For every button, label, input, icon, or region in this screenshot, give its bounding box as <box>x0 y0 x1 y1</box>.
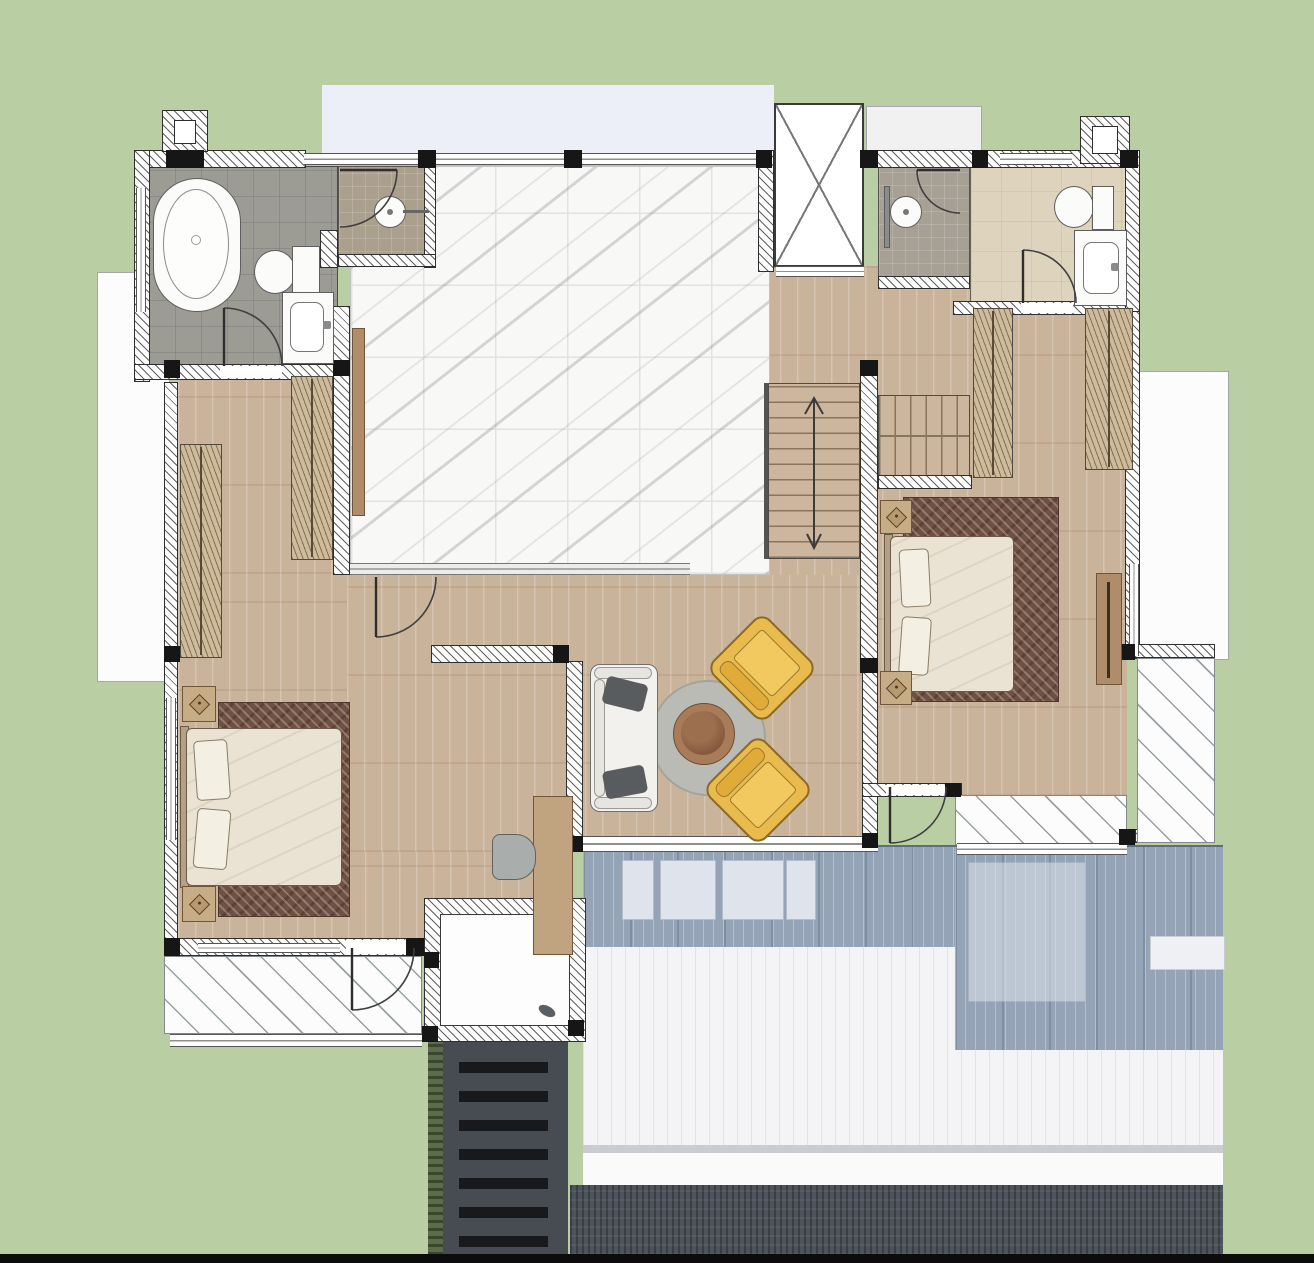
toilet-tank <box>1092 186 1114 230</box>
column <box>166 150 204 168</box>
column <box>860 150 878 168</box>
balcony-left <box>164 956 422 1034</box>
bathtub <box>153 178 241 312</box>
column <box>972 150 988 168</box>
wardrobe <box>973 308 1013 478</box>
column <box>1120 150 1138 168</box>
column <box>860 658 878 673</box>
window <box>438 153 772 165</box>
window <box>136 188 146 312</box>
floor-plan-canvas <box>0 0 1314 1263</box>
window <box>1000 153 1072 165</box>
vanity-sink <box>1074 230 1127 306</box>
column <box>164 646 180 662</box>
right-lower-roof <box>1137 371 1229 660</box>
coffee-table <box>673 703 735 765</box>
window <box>166 698 176 840</box>
nightstand <box>182 686 216 722</box>
nightstand <box>880 500 912 534</box>
grab-bar <box>884 186 890 248</box>
bed-2 <box>890 536 1014 692</box>
column <box>860 360 878 376</box>
wall <box>431 645 569 663</box>
wall <box>864 150 976 168</box>
door-opening <box>220 366 282 378</box>
shower-room-2 <box>878 166 970 278</box>
terrace-strip <box>955 795 1127 845</box>
wall <box>134 150 306 168</box>
shower-head <box>374 196 406 228</box>
bottom-bar <box>0 1254 1314 1263</box>
column <box>422 1026 438 1042</box>
terrace-right <box>1137 658 1215 843</box>
hall-console <box>352 328 365 516</box>
wall <box>164 382 178 956</box>
elevator-shaft <box>774 103 864 267</box>
sofa <box>590 664 658 812</box>
wall <box>1125 150 1140 316</box>
wardrobe <box>291 376 333 560</box>
balcony-sill <box>170 1034 422 1047</box>
vanity-sink <box>282 292 334 364</box>
column <box>568 1020 584 1036</box>
toilet <box>254 250 296 294</box>
column <box>164 360 180 378</box>
desk-console <box>533 796 573 955</box>
door-opening <box>886 785 946 795</box>
deck-white-patch <box>1150 936 1225 970</box>
column <box>424 952 439 968</box>
stair-railing <box>764 383 768 559</box>
column <box>756 150 772 168</box>
column <box>564 150 582 168</box>
bed-master <box>186 728 342 886</box>
wall <box>878 475 972 489</box>
wardrobe <box>1085 308 1133 470</box>
lower-dark-roof <box>570 1185 1223 1255</box>
louver-slats <box>459 1061 548 1247</box>
window <box>198 943 340 953</box>
column <box>418 150 436 168</box>
wall <box>424 164 436 268</box>
column <box>1119 829 1135 845</box>
column <box>164 938 180 956</box>
desk-chair <box>492 834 536 880</box>
tv-console <box>1096 573 1122 685</box>
wall <box>758 150 774 272</box>
wall <box>862 672 878 835</box>
deck-light-panel <box>968 862 1086 1002</box>
wardrobe <box>180 444 222 658</box>
deck-skylight-panel <box>722 860 784 920</box>
wall <box>860 374 878 672</box>
shower-arm <box>403 210 429 213</box>
shower-head <box>890 196 922 228</box>
column <box>945 783 961 797</box>
stair-flight-lower <box>878 395 970 477</box>
hall-step-edge <box>347 563 690 575</box>
deck-skylight-panel <box>622 860 654 920</box>
louvered-canopy <box>443 1035 568 1255</box>
terrace-sill <box>957 843 1127 855</box>
wall <box>338 254 436 267</box>
wall <box>333 306 350 575</box>
door-opening <box>1021 303 1073 313</box>
elevator-sill <box>776 266 864 277</box>
sliding-door-band <box>583 836 878 852</box>
door-opening <box>346 940 410 954</box>
column <box>406 938 424 956</box>
column <box>333 360 350 376</box>
wall <box>320 230 338 268</box>
column <box>862 833 878 848</box>
stair-flight-up <box>768 383 860 559</box>
window <box>1129 564 1139 656</box>
hedge-strip <box>428 1040 443 1255</box>
deck-skylight-panel <box>786 860 816 920</box>
toilet <box>1054 186 1094 228</box>
nightstand <box>182 886 216 922</box>
column <box>553 645 569 663</box>
nightstand <box>880 671 912 705</box>
wall <box>878 276 970 289</box>
toilet-tank <box>292 246 320 294</box>
deck-skylight-panel <box>660 860 716 920</box>
